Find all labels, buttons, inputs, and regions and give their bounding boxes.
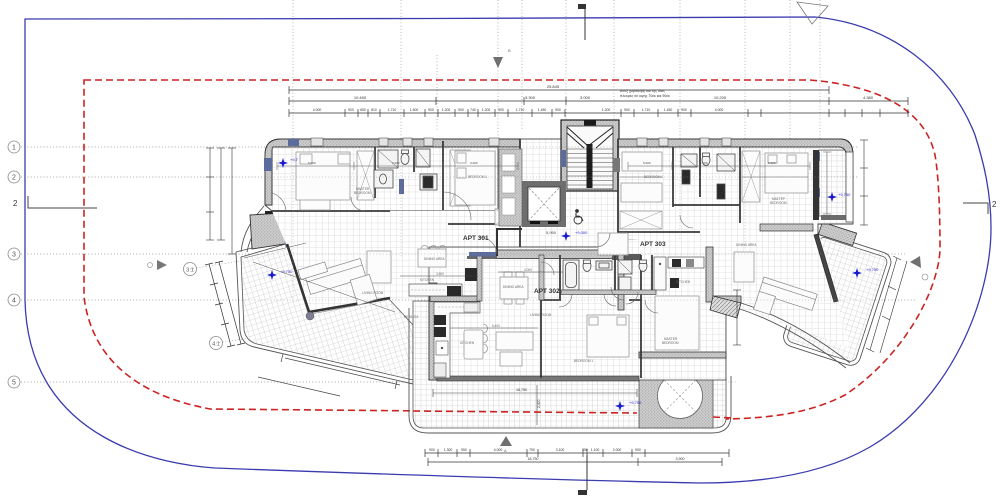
svg-text:650: 650 bbox=[360, 108, 366, 112]
svg-text:4.000: 4.000 bbox=[524, 268, 532, 272]
svg-text:6,400: 6,400 bbox=[492, 324, 500, 328]
svg-text:1.450: 1.450 bbox=[538, 108, 547, 112]
svg-text:4.380: 4.380 bbox=[863, 95, 874, 100]
svg-text:900: 900 bbox=[428, 108, 434, 112]
svg-text:DINING AREA: DINING AREA bbox=[424, 257, 445, 261]
svg-text:18,750: 18,750 bbox=[516, 388, 527, 392]
svg-text:3.200: 3.200 bbox=[392, 161, 400, 165]
svg-text:BEDROOM 1: BEDROOM 1 bbox=[644, 175, 663, 179]
svg-text:900: 900 bbox=[624, 108, 630, 112]
svg-text:5: 5 bbox=[12, 380, 16, 387]
svg-text:3.000: 3.000 bbox=[580, 95, 591, 100]
svg-text:250: 250 bbox=[582, 448, 588, 452]
svg-text:3.1: 3.1 bbox=[186, 268, 194, 274]
svg-text:1.200: 1.200 bbox=[482, 108, 491, 112]
svg-text:3.500: 3.500 bbox=[436, 272, 444, 276]
svg-text:1.450: 1.450 bbox=[664, 108, 673, 112]
svg-text:810: 810 bbox=[371, 108, 377, 112]
svg-text:KITCHEN: KITCHEN bbox=[460, 341, 475, 345]
svg-text:1.710: 1.710 bbox=[516, 108, 525, 112]
svg-text:B: B bbox=[508, 48, 511, 53]
svg-text:+9,750: +9,750 bbox=[838, 192, 851, 197]
svg-text:1: 1 bbox=[12, 145, 16, 152]
svg-text:ΒΕΡΑΝΤΑ: ΒΕΡΑΝΤΑ bbox=[404, 315, 419, 319]
svg-text:1.200: 1.200 bbox=[602, 108, 611, 112]
svg-text:18,750: 18,750 bbox=[528, 457, 539, 461]
svg-text:DINING AREA: DINING AREA bbox=[736, 243, 757, 247]
svg-text:4.000: 4.000 bbox=[494, 448, 503, 452]
svg-text:2,400: 2,400 bbox=[537, 399, 541, 408]
svg-text:900: 900 bbox=[429, 448, 435, 452]
svg-text:750: 750 bbox=[529, 448, 535, 452]
svg-text:5,950: 5,950 bbox=[546, 230, 557, 235]
svg-text:BEDROOM: BEDROOM bbox=[662, 341, 679, 345]
svg-text:3.200: 3.200 bbox=[470, 161, 478, 165]
svg-text:900: 900 bbox=[348, 108, 354, 112]
svg-text:APT 303: APT 303 bbox=[640, 241, 666, 248]
svg-text:+9,750: +9,750 bbox=[866, 267, 879, 272]
svg-text:2: 2 bbox=[13, 199, 18, 208]
svg-text:BEDROOM 1: BEDROOM 1 bbox=[468, 175, 487, 179]
svg-text:10.450: 10.450 bbox=[354, 95, 367, 100]
svg-text:+9,750: +9,750 bbox=[629, 400, 642, 405]
svg-text:1.500: 1.500 bbox=[410, 108, 419, 112]
svg-text:APT 302: APT 302 bbox=[534, 288, 560, 295]
svg-text:900: 900 bbox=[498, 108, 504, 112]
svg-text:BEDROOM 1: BEDROOM 1 bbox=[574, 359, 593, 363]
svg-text:DINING AREA: DINING AREA bbox=[503, 285, 524, 289]
svg-text:BEDROOM: BEDROOM bbox=[770, 201, 787, 205]
svg-text:1.710: 1.710 bbox=[642, 108, 651, 112]
svg-text:+9,7: +9,7 bbox=[290, 157, 299, 162]
svg-text:3.300: 3.300 bbox=[525, 95, 536, 100]
svg-text:KITCHEN: KITCHEN bbox=[676, 280, 691, 284]
svg-text:1.200: 1.200 bbox=[442, 108, 451, 112]
svg-text:2.000: 2.000 bbox=[613, 448, 622, 452]
svg-text:4.000: 4.000 bbox=[715, 108, 724, 112]
svg-text:3.100: 3.100 bbox=[556, 448, 565, 452]
svg-text:900: 900 bbox=[555, 108, 561, 112]
svg-text:πλευρες σε οψης 70εκ και 90εκ: πλευρες σε οψης 70εκ και 90εκ bbox=[620, 94, 670, 98]
svg-text:+9,000: +9,000 bbox=[575, 230, 588, 235]
svg-text:950: 950 bbox=[461, 448, 467, 452]
svg-text:5.000: 5.000 bbox=[308, 161, 316, 165]
svg-text:5.000: 5.000 bbox=[643, 161, 651, 165]
svg-text:1.300: 1.300 bbox=[444, 448, 453, 452]
svg-text:3: 3 bbox=[12, 252, 16, 259]
svg-text:4.1: 4.1 bbox=[212, 342, 220, 348]
svg-text:2: 2 bbox=[12, 175, 16, 182]
svg-text:3,900: 3,900 bbox=[676, 457, 685, 461]
svg-text:900: 900 bbox=[458, 108, 464, 112]
svg-text:Αντιξ χαραλαβξι και της ιδιες: Αντιξ χαραλαβξι και της ιδιες bbox=[620, 89, 665, 93]
svg-text:1.710: 1.710 bbox=[388, 108, 397, 112]
svg-text:KITCHEN: KITCHEN bbox=[420, 278, 435, 282]
svg-text:1.100: 1.100 bbox=[700, 161, 708, 165]
svg-text:LIVING ROOM: LIVING ROOM bbox=[530, 313, 552, 317]
svg-text:BEDROOM: BEDROOM bbox=[354, 191, 371, 195]
svg-text:25.845: 25.845 bbox=[547, 84, 560, 89]
svg-text:10.200: 10.200 bbox=[714, 95, 727, 100]
svg-text:900: 900 bbox=[635, 448, 641, 452]
svg-text:LIVING ROOM: LIVING ROOM bbox=[362, 291, 384, 295]
svg-text:2: 2 bbox=[992, 200, 997, 209]
svg-text:900: 900 bbox=[681, 108, 687, 112]
svg-text:4.000: 4.000 bbox=[313, 108, 322, 112]
svg-text:1.100: 1.100 bbox=[591, 448, 600, 452]
svg-text:4: 4 bbox=[12, 298, 16, 305]
svg-text:+9,700: +9,700 bbox=[280, 269, 293, 274]
svg-text:A: A bbox=[504, 448, 507, 453]
svg-text:5.600: 5.600 bbox=[768, 161, 776, 165]
svg-text:APT 301: APT 301 bbox=[463, 235, 489, 242]
svg-text:740: 740 bbox=[470, 108, 476, 112]
